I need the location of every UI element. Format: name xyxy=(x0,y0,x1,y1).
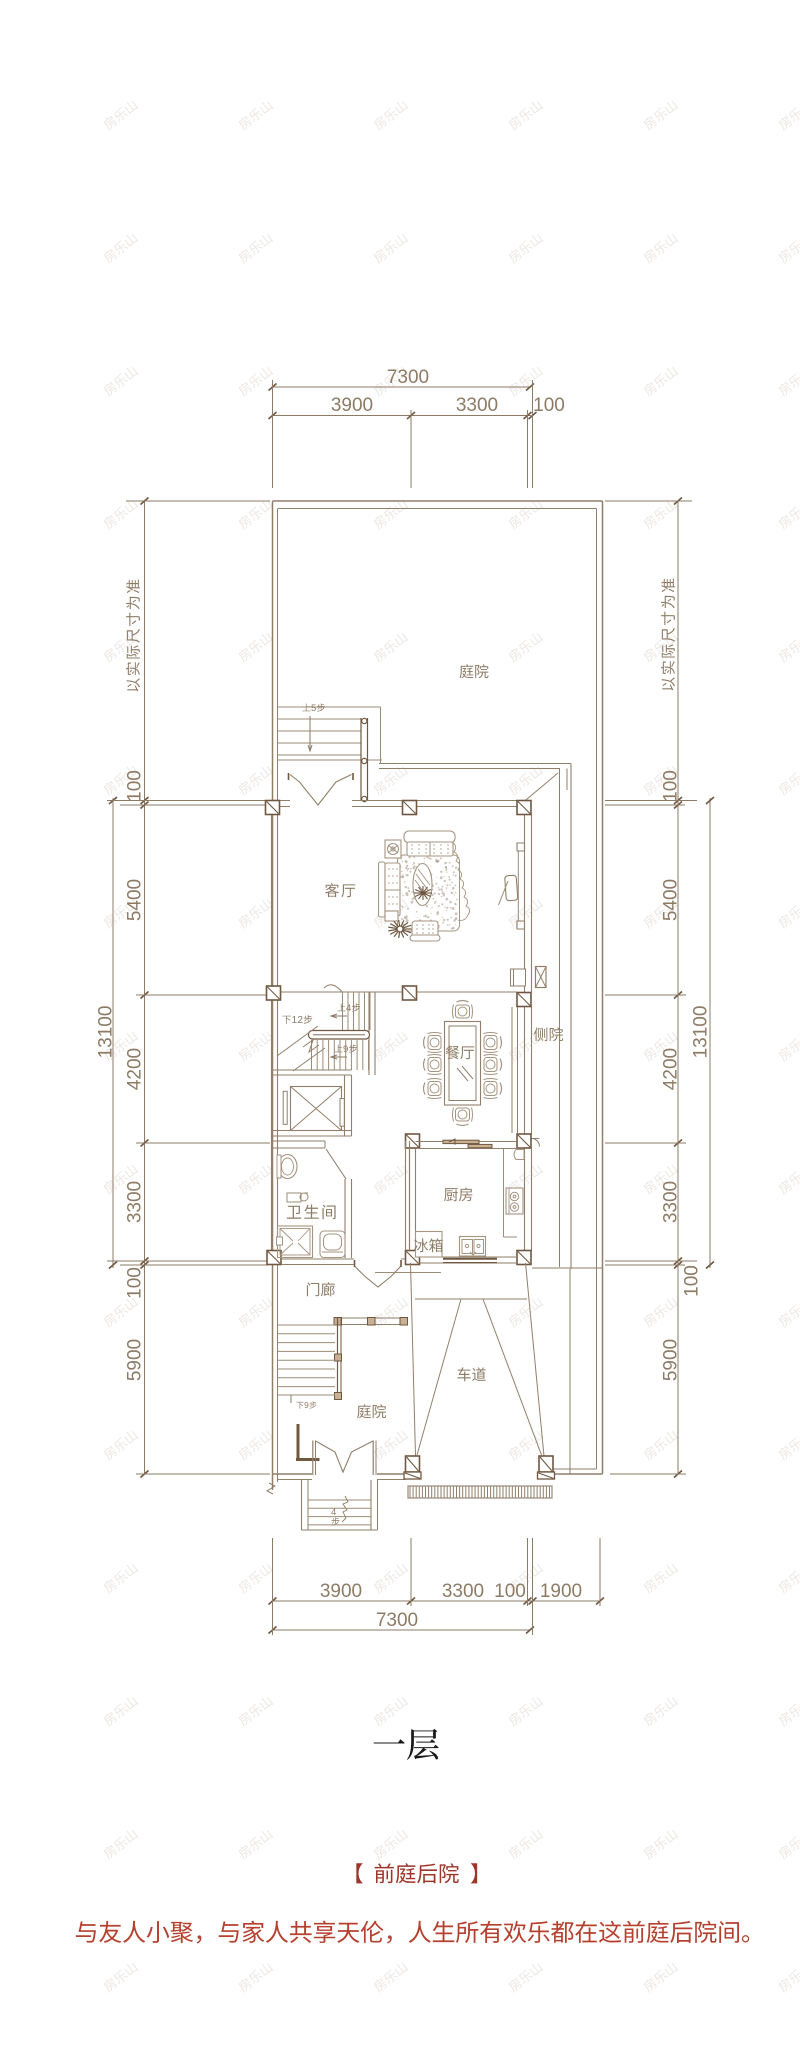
svg-text:100: 100 xyxy=(661,770,682,802)
svg-text:7300: 7300 xyxy=(387,367,429,388)
svg-text:5900: 5900 xyxy=(125,1339,146,1381)
svg-text:5400: 5400 xyxy=(125,879,146,921)
svg-text:2: 2 xyxy=(297,1015,303,1026)
svg-text:100: 100 xyxy=(533,395,565,416)
svg-text:100: 100 xyxy=(125,1267,146,1299)
svg-text:3300: 3300 xyxy=(125,1181,146,1223)
svg-text:3300: 3300 xyxy=(442,1581,484,1602)
svg-text:3900: 3900 xyxy=(331,395,373,416)
svg-text:4200: 4200 xyxy=(661,1048,682,1090)
svg-text:13100: 13100 xyxy=(96,1006,117,1059)
svg-text:3300: 3300 xyxy=(661,1181,682,1223)
svg-text:13100: 13100 xyxy=(691,1006,712,1059)
svg-text:4: 4 xyxy=(331,1507,336,1518)
svg-text:5: 5 xyxy=(311,703,316,714)
svg-text:4: 4 xyxy=(346,1003,351,1014)
svg-text:9: 9 xyxy=(343,1044,348,1055)
svg-text:3300: 3300 xyxy=(456,395,498,416)
svg-text:4200: 4200 xyxy=(125,1048,146,1090)
svg-text:5400: 5400 xyxy=(661,879,682,921)
svg-text:5900: 5900 xyxy=(661,1339,682,1381)
svg-text:100: 100 xyxy=(125,770,146,802)
svg-text:9: 9 xyxy=(304,1400,309,1410)
svg-text:3900: 3900 xyxy=(320,1581,362,1602)
svg-text:1900: 1900 xyxy=(540,1581,582,1602)
svg-text:7300: 7300 xyxy=(376,1610,418,1631)
svg-text:100: 100 xyxy=(682,1265,703,1297)
svg-text:100: 100 xyxy=(494,1581,526,1602)
